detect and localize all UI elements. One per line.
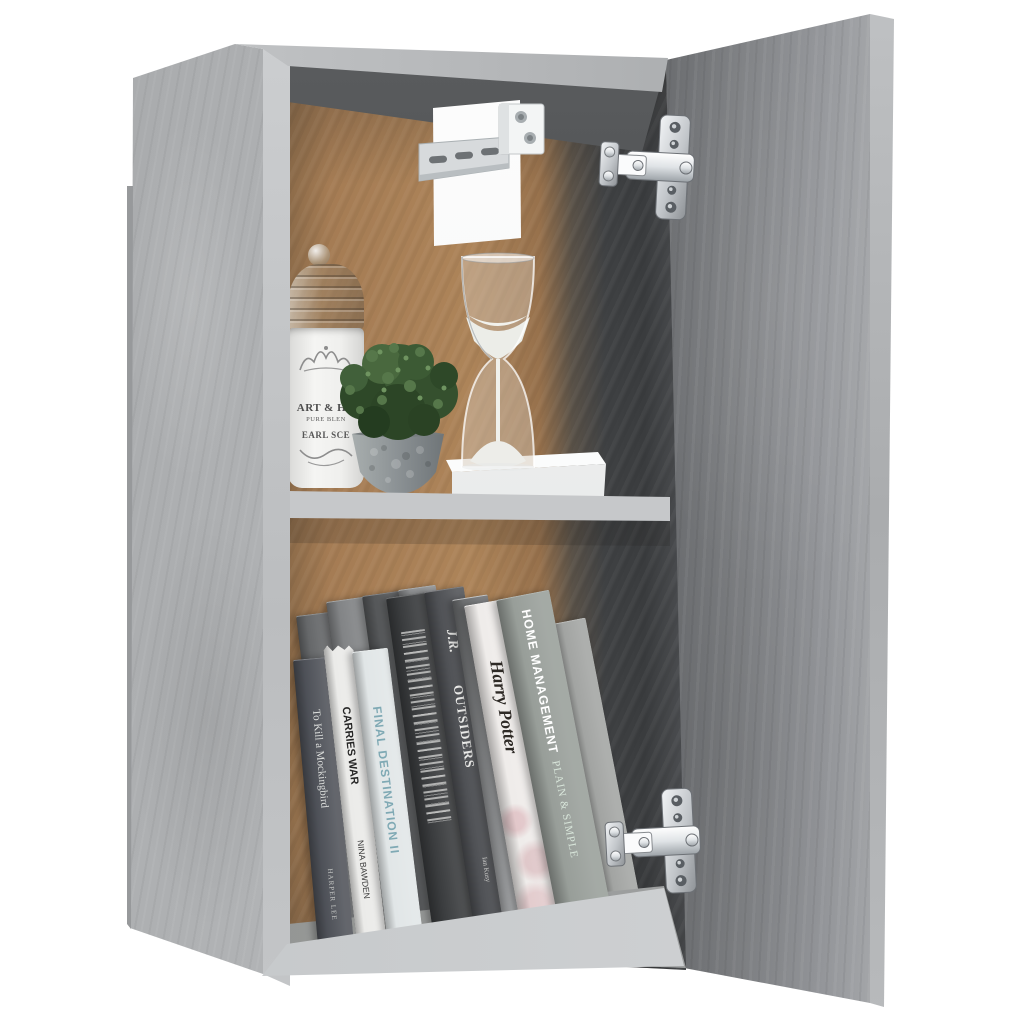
jar-lid-knob (308, 244, 330, 266)
plant-foliage (324, 334, 472, 454)
jar-glass-lid (288, 264, 364, 330)
mounting-bracket-icon (496, 100, 548, 158)
door-hinge-bottom (601, 783, 707, 900)
door-hinge-top (595, 107, 701, 224)
product-photo-wall-cabinet: ART & HO PURE BLEN EARL SCE (0, 0, 1024, 1024)
